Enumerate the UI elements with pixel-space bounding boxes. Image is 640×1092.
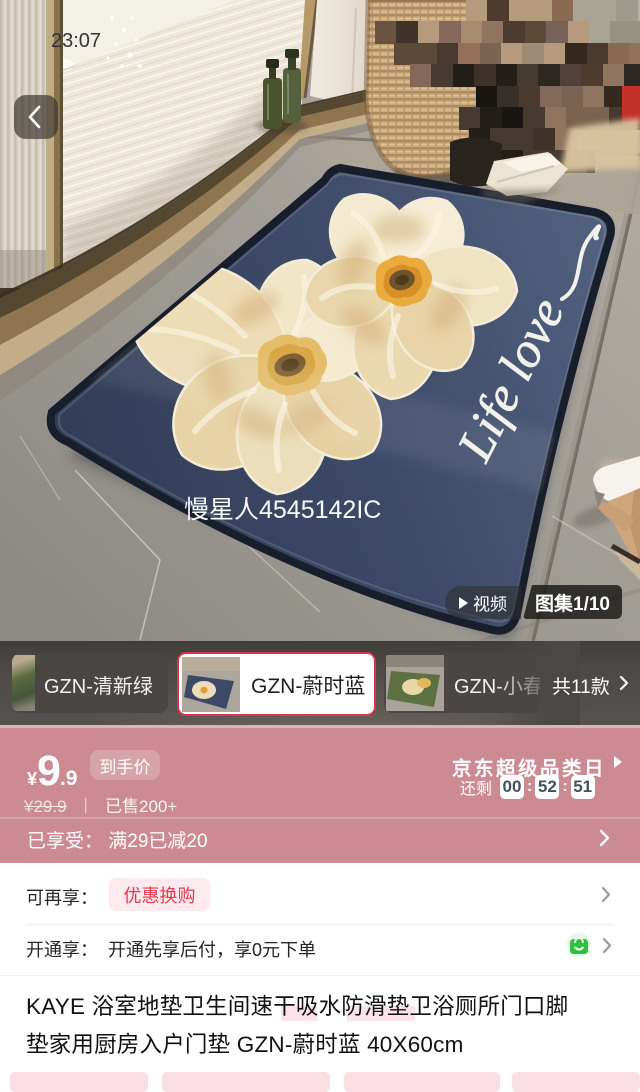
svg-text:慢星人4545142IC: 慢星人4545142IC (184, 496, 381, 524)
